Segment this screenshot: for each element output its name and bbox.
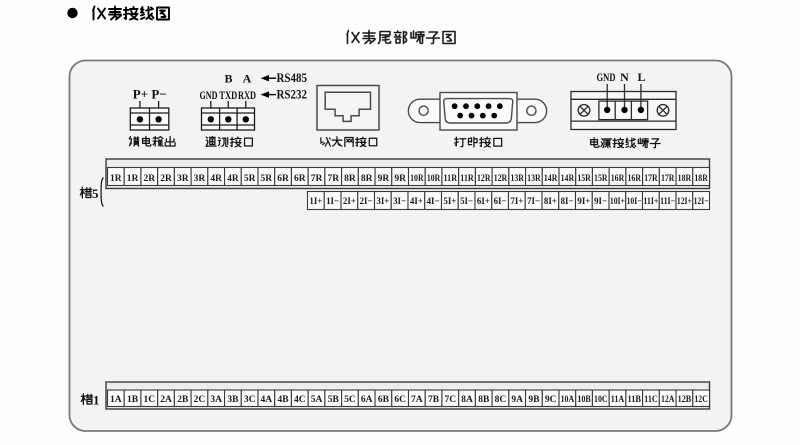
svg-text:8I−: 8I− xyxy=(561,197,574,207)
svg-text:1I−: 1I− xyxy=(326,197,339,207)
svg-text:1I+: 1I+ xyxy=(309,197,322,207)
svg-text:3R: 3R xyxy=(194,174,206,184)
svg-text:12I−: 12I− xyxy=(694,197,709,207)
svg-text:9B: 9B xyxy=(528,395,540,405)
svg-text:4R: 4R xyxy=(227,174,239,184)
svg-text:5C: 5C xyxy=(344,395,356,405)
svg-text:9I−: 9I− xyxy=(594,197,607,207)
svg-text:9R: 9R xyxy=(394,174,406,184)
svg-text:1R: 1R xyxy=(127,174,139,184)
svg-text:8A: 8A xyxy=(461,395,473,405)
svg-text:5A: 5A xyxy=(311,395,323,405)
svg-text:10A: 10A xyxy=(561,395,575,405)
svg-text:4C: 4C xyxy=(294,395,306,405)
svg-text:11A: 11A xyxy=(611,395,625,405)
svg-text:1: 1 xyxy=(93,393,100,408)
svg-text:4I+: 4I+ xyxy=(410,197,423,207)
svg-text:6I+: 6I+ xyxy=(477,197,490,207)
svg-text:12R: 12R xyxy=(494,174,508,184)
svg-text:RS485: RS485 xyxy=(277,71,308,85)
svg-text:1A: 1A xyxy=(110,395,122,405)
svg-text:P+: P+ xyxy=(133,87,148,102)
svg-text:6R: 6R xyxy=(277,174,289,184)
svg-text:15R: 15R xyxy=(594,174,608,184)
svg-text:5R: 5R xyxy=(244,174,256,184)
svg-text:11I+: 11I+ xyxy=(643,197,658,207)
svg-text:L: L xyxy=(637,70,645,84)
svg-text:2R: 2R xyxy=(160,174,172,184)
svg-text:14R: 14R xyxy=(561,174,575,184)
svg-text:2C: 2C xyxy=(194,395,206,405)
svg-text:9A: 9A xyxy=(511,395,523,405)
svg-text:P−: P− xyxy=(151,87,166,102)
svg-text:7A: 7A xyxy=(411,395,423,405)
svg-text:10I+: 10I+ xyxy=(610,197,625,207)
svg-text:6R: 6R xyxy=(294,174,306,184)
svg-text:11C: 11C xyxy=(644,395,658,405)
svg-text:8R: 8R xyxy=(361,174,373,184)
svg-text:GND: GND xyxy=(597,70,616,84)
svg-text:10R: 10R xyxy=(427,174,441,184)
svg-text:3C: 3C xyxy=(244,395,256,405)
svg-text:9C: 9C xyxy=(545,395,557,405)
svg-text:6I−: 6I− xyxy=(494,197,507,207)
svg-text:5I+: 5I+ xyxy=(443,197,456,207)
svg-text:B: B xyxy=(224,72,232,86)
svg-text:4I−: 4I− xyxy=(427,197,440,207)
svg-text:12A: 12A xyxy=(661,395,675,405)
svg-text:RS232: RS232 xyxy=(277,88,308,102)
svg-text:7I+: 7I+ xyxy=(510,197,523,207)
svg-text:8I+: 8I+ xyxy=(544,197,557,207)
svg-text:4B: 4B xyxy=(278,395,290,405)
svg-text:TXD: TXD xyxy=(219,88,237,102)
svg-text:9R: 9R xyxy=(378,174,390,184)
svg-text:12R: 12R xyxy=(477,174,491,184)
svg-text:5: 5 xyxy=(92,186,99,201)
svg-text:13R: 13R xyxy=(527,174,541,184)
svg-text:7C: 7C xyxy=(444,395,456,405)
svg-text:14R: 14R xyxy=(544,174,558,184)
svg-text:15R: 15R xyxy=(577,174,591,184)
svg-text:10R: 10R xyxy=(410,174,424,184)
svg-text:A: A xyxy=(243,72,252,86)
svg-text:6C: 6C xyxy=(394,395,406,405)
svg-text:16R: 16R xyxy=(611,174,625,184)
svg-text:11R: 11R xyxy=(444,174,458,184)
svg-text:2I−: 2I− xyxy=(360,197,373,207)
svg-text:3A: 3A xyxy=(210,395,222,405)
svg-text:12B: 12B xyxy=(678,395,692,405)
svg-text:1C: 1C xyxy=(143,395,155,405)
svg-text:8C: 8C xyxy=(495,395,507,405)
svg-text:17R: 17R xyxy=(644,174,658,184)
svg-text:12C: 12C xyxy=(694,395,708,405)
svg-text:12I+: 12I+ xyxy=(677,197,692,207)
svg-text:16R: 16R xyxy=(628,174,642,184)
svg-text:17R: 17R xyxy=(661,174,675,184)
svg-text:2I+: 2I+ xyxy=(343,197,356,207)
svg-text:N: N xyxy=(620,70,629,84)
svg-text:7I−: 7I− xyxy=(527,197,540,207)
svg-text:7R: 7R xyxy=(327,174,339,184)
svg-text:1B: 1B xyxy=(127,395,139,405)
svg-text:5B: 5B xyxy=(328,395,340,405)
svg-text:9I+: 9I+ xyxy=(577,197,590,207)
svg-text:11R: 11R xyxy=(460,174,474,184)
svg-text:7B: 7B xyxy=(428,395,440,405)
svg-text:11B: 11B xyxy=(628,395,642,405)
svg-text:2A: 2A xyxy=(160,395,172,405)
svg-text:10I−: 10I− xyxy=(627,197,642,207)
svg-text:5I−: 5I− xyxy=(460,197,473,207)
svg-text:18R: 18R xyxy=(678,174,692,184)
svg-text:8R: 8R xyxy=(344,174,356,184)
svg-text:3B: 3B xyxy=(227,395,239,405)
svg-text:3I−: 3I− xyxy=(393,197,406,207)
svg-text:13R: 13R xyxy=(510,174,524,184)
svg-text:10B: 10B xyxy=(577,395,591,405)
svg-text:4A: 4A xyxy=(261,395,273,405)
svg-text:10C: 10C xyxy=(594,395,608,405)
svg-text:3I+: 3I+ xyxy=(376,197,389,207)
svg-text:2R: 2R xyxy=(143,174,155,184)
svg-text:7R: 7R xyxy=(311,174,323,184)
svg-text:RXD: RXD xyxy=(238,88,256,102)
svg-text:18R: 18R xyxy=(694,174,708,184)
svg-text:8B: 8B xyxy=(478,395,490,405)
svg-text:6B: 6B xyxy=(378,395,390,405)
svg-text:6A: 6A xyxy=(361,395,373,405)
svg-text:3R: 3R xyxy=(177,174,189,184)
svg-text:5R: 5R xyxy=(261,174,273,184)
svg-text:4R: 4R xyxy=(210,174,222,184)
svg-text:2B: 2B xyxy=(177,395,189,405)
svg-text:GND: GND xyxy=(200,88,218,102)
svg-text:11I−: 11I− xyxy=(660,197,675,207)
svg-text:1R: 1R xyxy=(110,174,122,184)
